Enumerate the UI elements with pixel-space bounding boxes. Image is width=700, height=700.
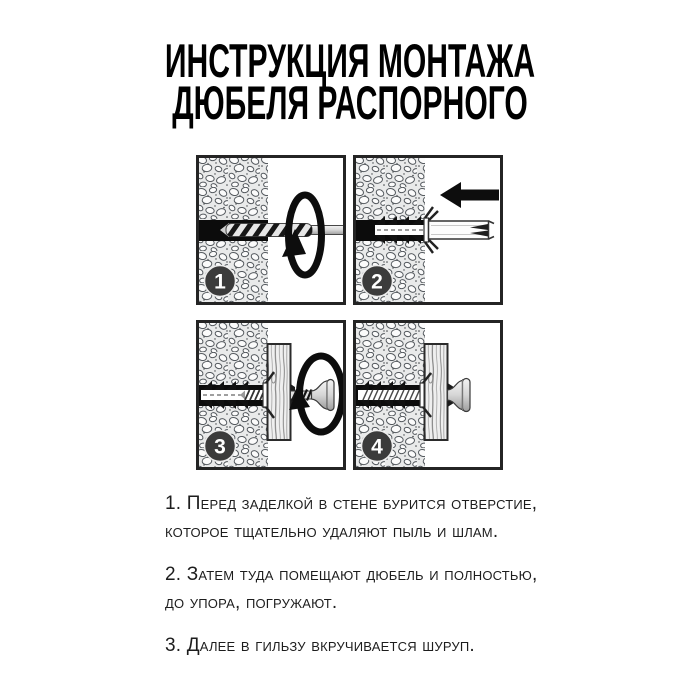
step-number-badge: 3 <box>205 431 236 462</box>
instruction-steps: 1. Перед заделкой в стене бурится отверс… <box>165 490 615 675</box>
wood-board <box>268 344 291 440</box>
wood-board <box>425 344 448 440</box>
instruction-figure: 1 2 <box>196 155 503 470</box>
panel-step-1: 1 <box>196 155 346 305</box>
drill-bit-icon <box>220 223 345 237</box>
step-number-badge: 1 <box>205 266 236 297</box>
panel-step-4: 4 <box>353 320 503 470</box>
step-number: 2 <box>371 271 383 294</box>
step-2-text: 2. Затем туда помещают дюбель и полность… <box>165 561 615 617</box>
step-number: 1 <box>214 271 226 294</box>
title-line-2: ДЮБЕЛЯ РАСПОРНОГО <box>126 82 574 124</box>
step-number: 3 <box>214 436 226 459</box>
page-title: ИНСТРУКЦИЯ МОНТАЖА ДЮБЕЛЯ РАСПОРНОГО <box>126 40 574 124</box>
step-1-text: 1. Перед заделкой в стене бурится отверс… <box>165 490 615 546</box>
step-number: 4 <box>371 436 383 459</box>
panel-step-2: 2 <box>353 155 503 305</box>
step-number-badge: 4 <box>362 431 393 462</box>
step-3-text: 3. Далее в гильзу вкручивается шуруп. <box>165 632 615 660</box>
panel-step-3: 3 <box>196 320 346 470</box>
step-number-badge: 2 <box>362 266 393 297</box>
